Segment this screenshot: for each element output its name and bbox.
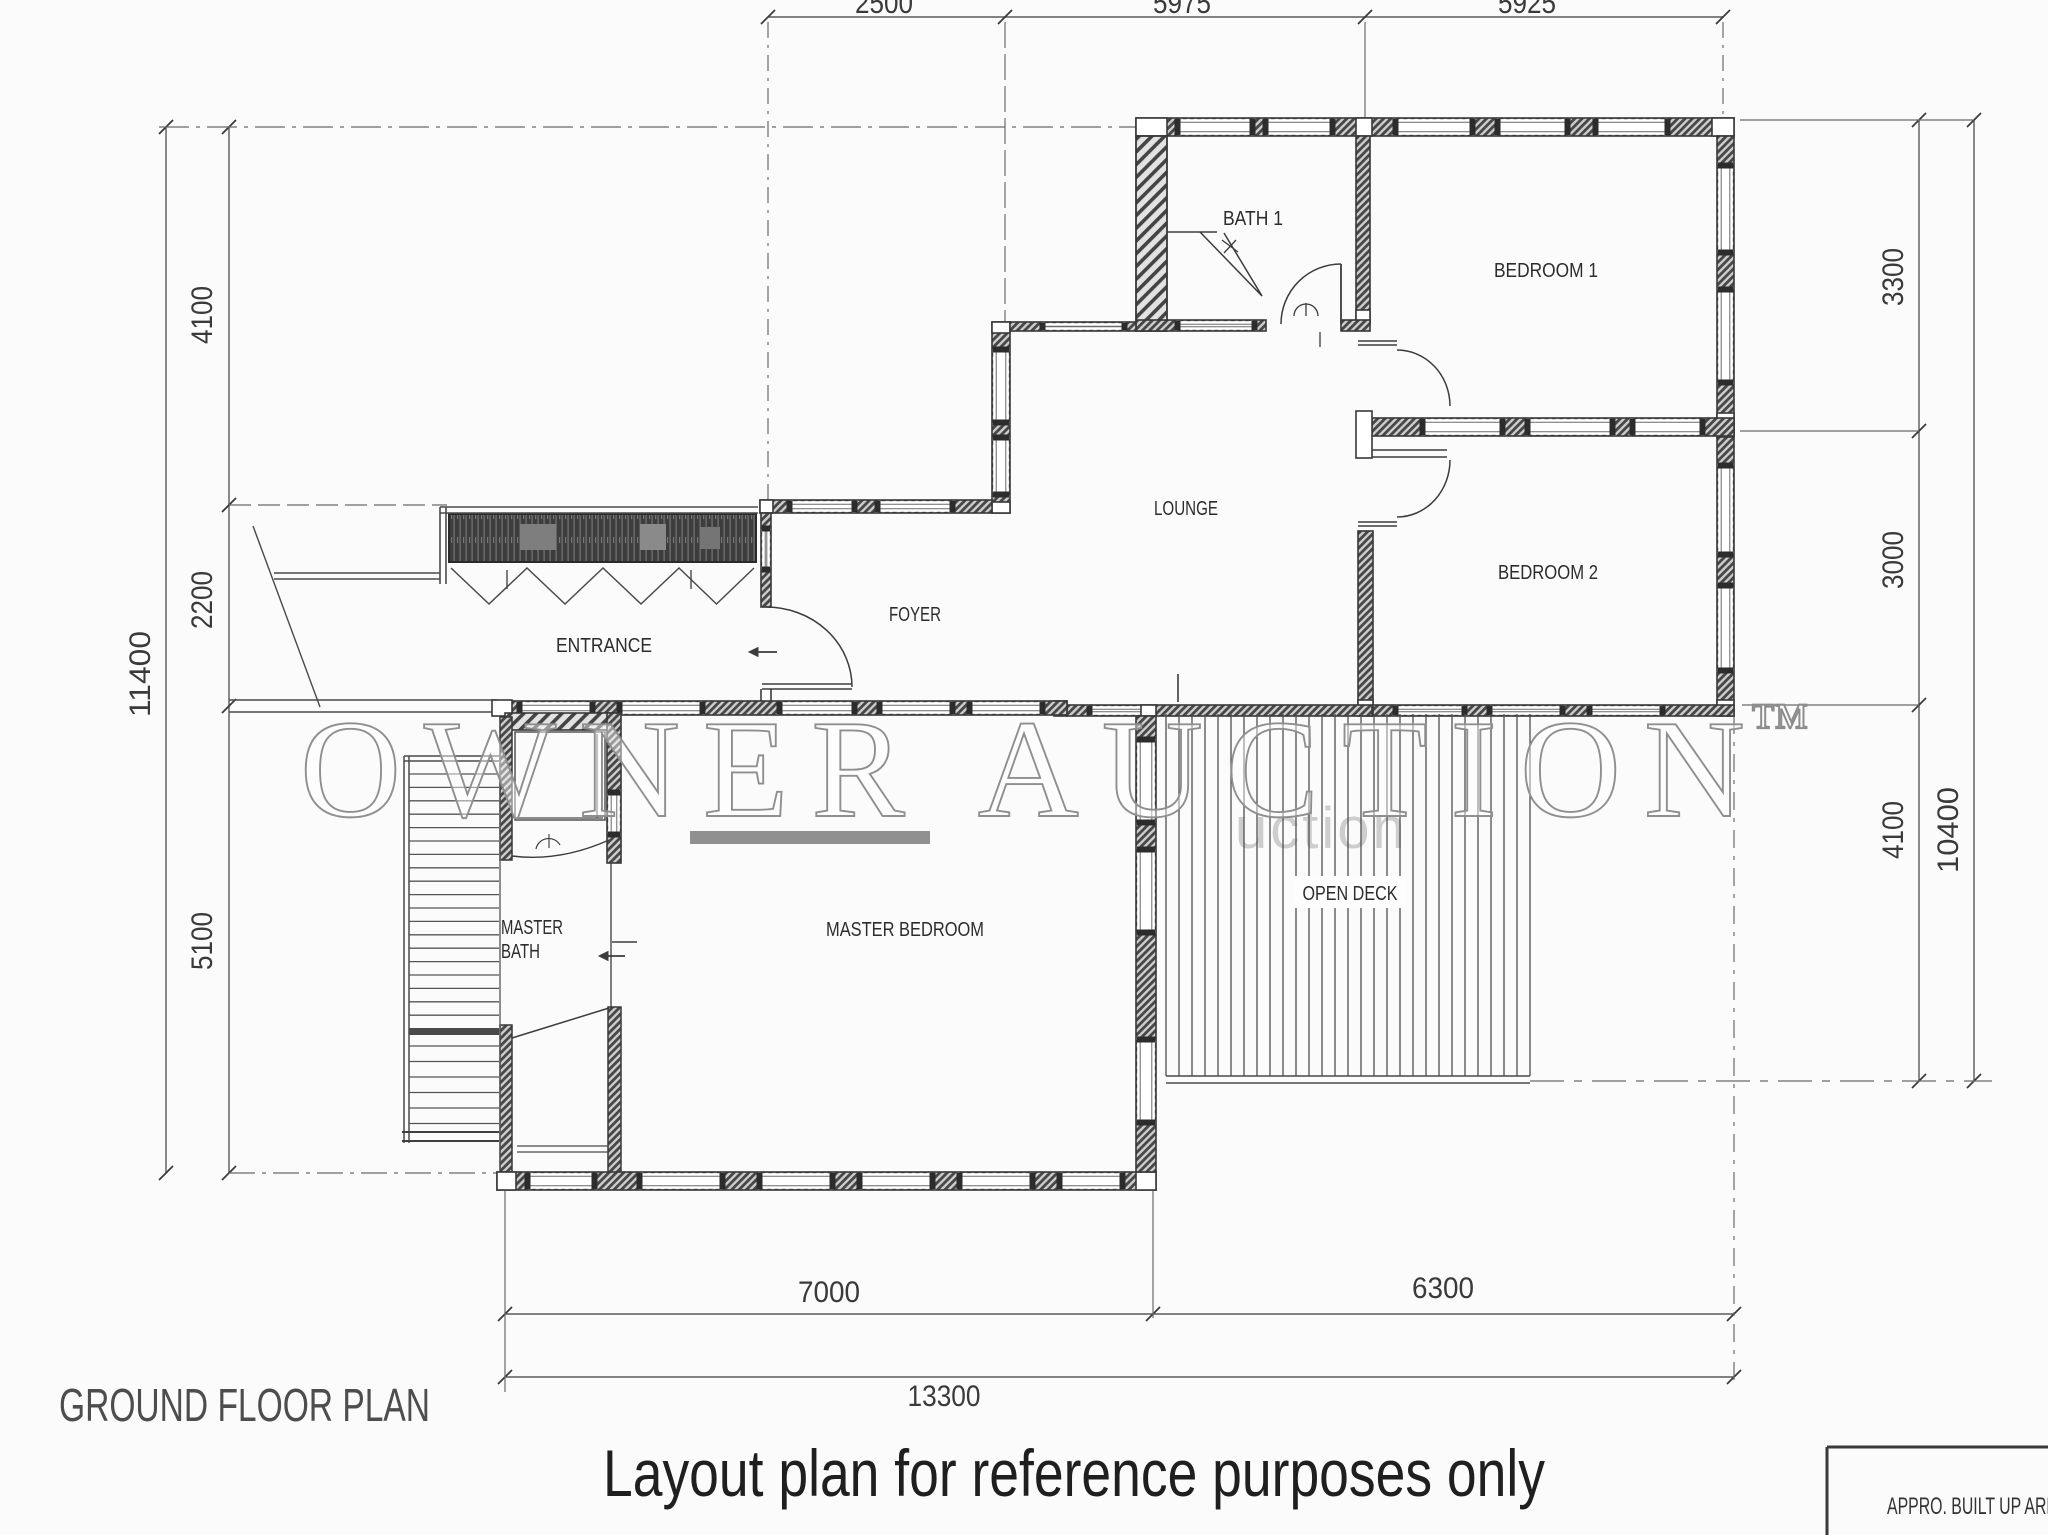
svg-text:5925: 5925 [1498, 0, 1556, 20]
svg-text:5975: 5975 [1153, 0, 1211, 20]
svg-text:BEDROOM 1: BEDROOM 1 [1494, 260, 1598, 282]
svg-text:BATH 1: BATH 1 [1223, 208, 1283, 230]
svg-text:2500: 2500 [855, 0, 913, 20]
svg-text:OWNER AUCTION: OWNER AUCTION [300, 692, 1745, 847]
svg-text:4100: 4100 [1877, 801, 1910, 859]
svg-text:11400: 11400 [124, 631, 157, 717]
svg-text:2200: 2200 [186, 571, 219, 629]
svg-text:3300: 3300 [1877, 248, 1910, 306]
svg-text:APPRO. BUILT UP ARE: APPRO. BUILT UP ARE [1887, 1493, 2048, 1520]
svg-text:BATH: BATH [501, 941, 540, 963]
svg-text:Layout plan for reference purp: Layout plan for reference purposes only [603, 1436, 1545, 1510]
svg-text:3000: 3000 [1877, 531, 1910, 589]
svg-text:7000: 7000 [798, 1276, 860, 1309]
svg-text:FOYER: FOYER [889, 604, 941, 626]
svg-text:OPEN DECK: OPEN DECK [1303, 883, 1399, 905]
svg-text:4100: 4100 [186, 286, 219, 344]
svg-text:MASTER: MASTER [501, 917, 563, 939]
svg-text:BEDROOM 2: BEDROOM 2 [1498, 562, 1598, 584]
svg-text:ENTRANCE: ENTRANCE [556, 635, 652, 657]
svg-text:GROUND FLOOR PLAN: GROUND FLOOR PLAN [59, 1379, 430, 1431]
svg-text:5100: 5100 [186, 912, 219, 970]
svg-text:LOUNGE: LOUNGE [1154, 498, 1218, 520]
svg-text:™: ™ [1750, 691, 1809, 757]
svg-text:MASTER BEDROOM: MASTER BEDROOM [826, 919, 984, 941]
svg-text:10400: 10400 [1932, 787, 1965, 873]
svg-text:13300: 13300 [908, 1380, 981, 1413]
svg-text:6300: 6300 [1412, 1272, 1474, 1305]
